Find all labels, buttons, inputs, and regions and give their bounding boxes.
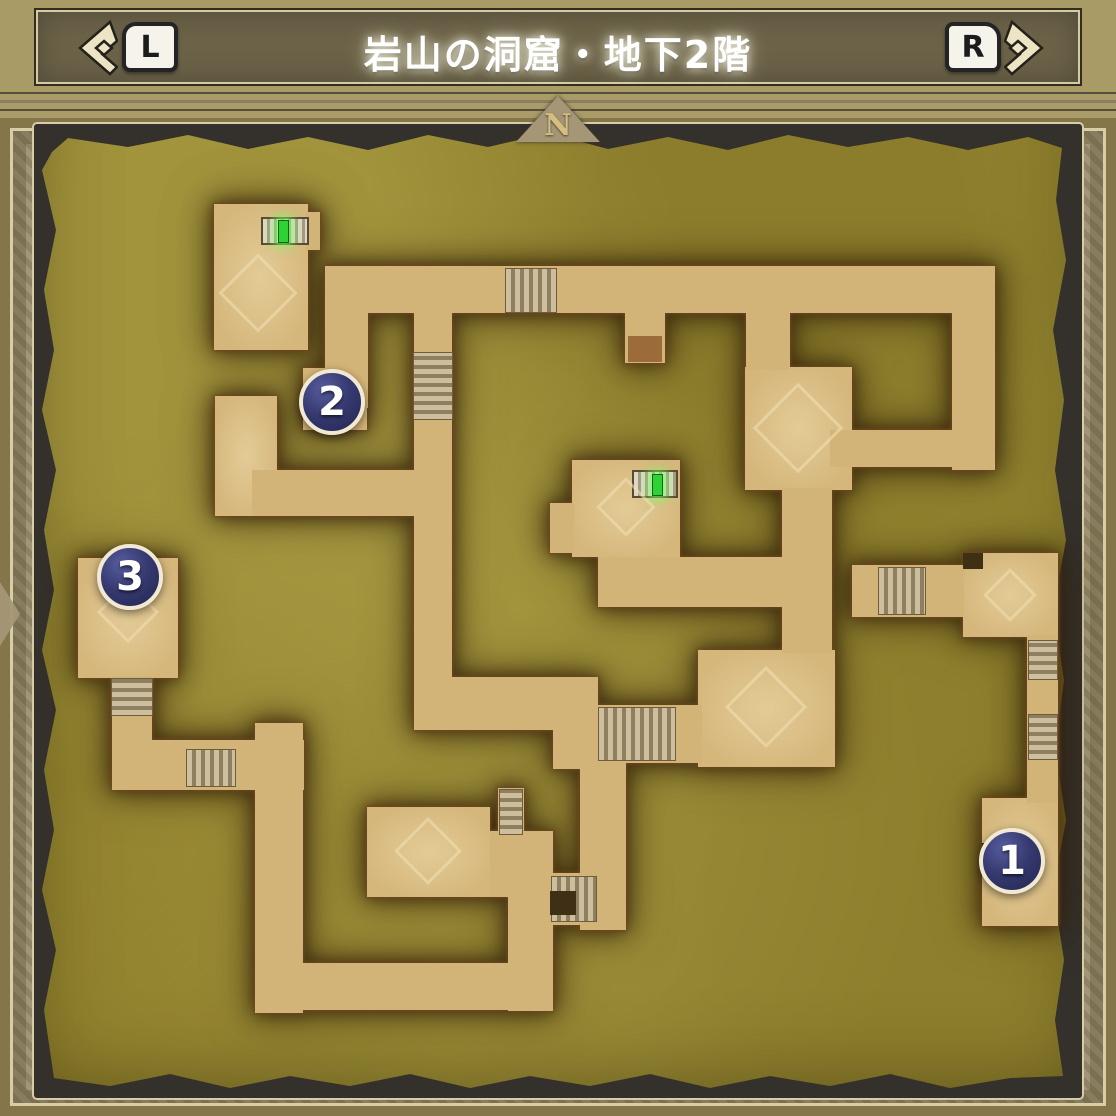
corridor-segment [252,470,452,516]
shoulder-button-r[interactable]: R [945,22,1001,72]
shoulder-button-r-label: R [961,30,984,65]
header-divider [0,92,1116,94]
map-marker-3-number: 3 [116,557,144,597]
double-chevron-left-icon[interactable] [74,20,118,76]
stairs-icon [186,749,236,787]
map-marker-1-number: 1 [998,841,1026,881]
green-door-icon [278,220,289,243]
dungeon-maze [0,0,1116,1116]
stairs-icon [413,352,453,420]
map-marker-3: 3 [97,544,163,610]
map-marker-2: 2 [299,369,365,435]
stairs-icon [1028,714,1058,760]
double-chevron-right-icon[interactable] [1004,20,1048,76]
map-marker-2-number: 2 [318,382,346,422]
stairs-icon [111,678,153,716]
stairs-icon [499,789,523,835]
shoulder-button-l[interactable]: L [122,22,178,72]
dark-notch [550,891,576,915]
dark-notch [963,553,983,569]
compass-north-label: N [544,108,572,143]
shoulder-button-l-label: L [140,30,159,65]
green-door-icon [652,474,663,496]
stairs-icon [1028,640,1058,680]
corridor-segment [782,488,832,653]
dead-end-notch [628,336,662,362]
stairs-icon [598,707,676,761]
compass-north-triangle: N [516,96,600,142]
stairs-icon [878,567,926,615]
corridor-segment [598,557,782,607]
corridor-segment [830,430,995,467]
corridor-segment [550,503,574,553]
corridor-north-main [328,266,995,313]
stairs-icon [505,268,557,313]
corridor-segment [746,310,790,370]
corridor-segment [490,831,530,897]
dungeon-map-screen: 1 2 3 N 岩山の洞窟・地下2階 L R [0,0,1116,1116]
map-marker-1: 1 [979,828,1045,894]
